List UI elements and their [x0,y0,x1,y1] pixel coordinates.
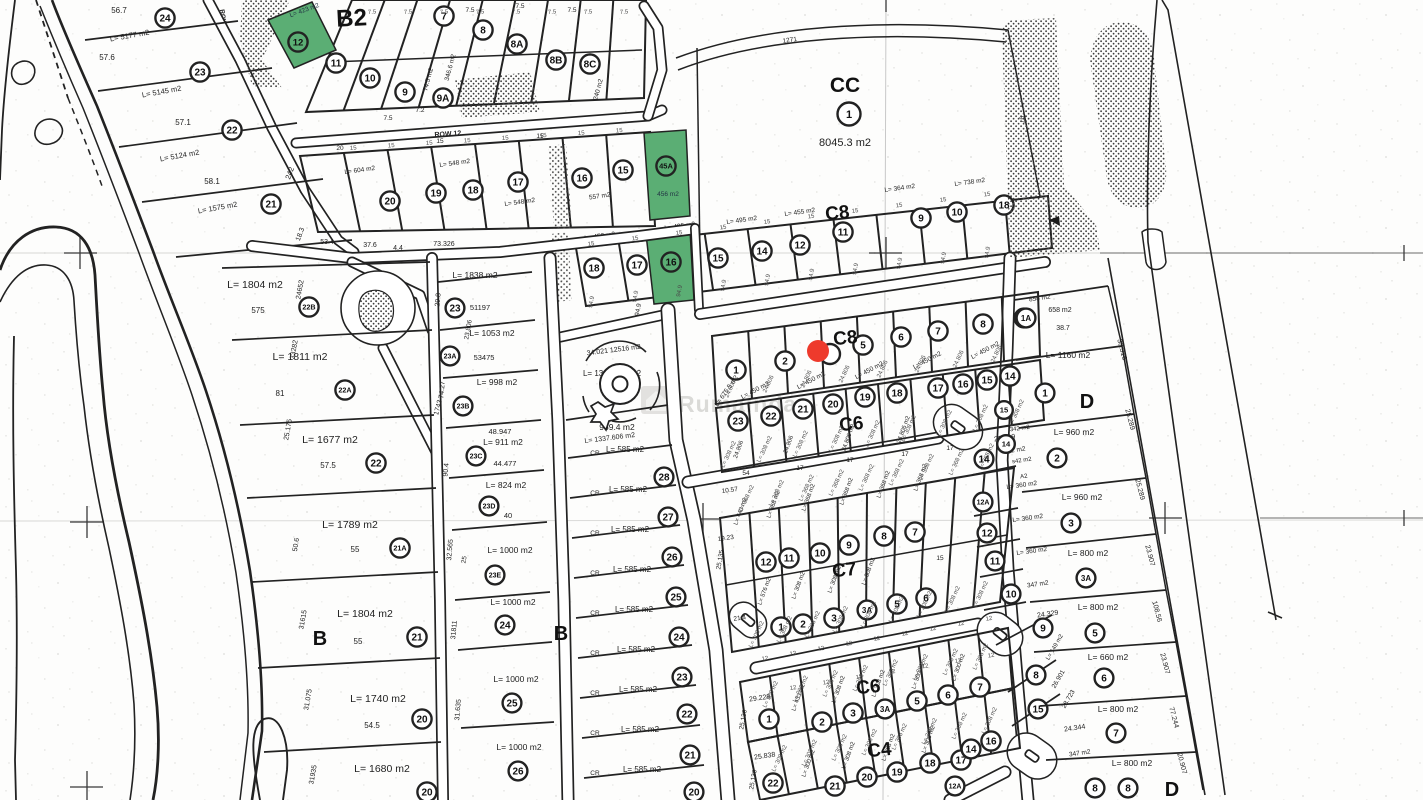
svg-text:L= 800 m2: L= 800 m2 [1112,758,1153,768]
svg-text:20: 20 [336,145,344,152]
svg-text:24: 24 [159,14,171,25]
svg-text:15: 15 [936,555,944,562]
svg-text:5: 5 [914,697,920,708]
svg-text:15: 15 [436,138,444,145]
svg-text:18: 18 [891,389,903,400]
svg-text:11: 11 [838,228,849,239]
svg-text:7.5: 7.5 [548,9,557,16]
svg-text:10: 10 [814,549,826,560]
svg-text:L= 800 m2: L= 800 m2 [1098,704,1139,714]
svg-text:19: 19 [859,393,871,404]
svg-text:81: 81 [276,389,285,398]
svg-text:CR: CR [590,650,600,657]
svg-text:CR: CR [590,690,600,697]
svg-text:8: 8 [1033,671,1039,682]
svg-text:CR: CR [590,610,600,617]
svg-text:3: 3 [1068,519,1074,530]
svg-text:21: 21 [265,200,277,211]
svg-text:7.5: 7.5 [383,115,392,122]
svg-text:18: 18 [924,759,936,770]
svg-text:17: 17 [512,178,524,189]
svg-text:21: 21 [829,782,841,793]
svg-text:3: 3 [850,709,856,720]
svg-text:16: 16 [665,258,677,269]
svg-text:15: 15 [464,138,472,144]
svg-text:B2: B2 [336,4,368,33]
svg-text:7: 7 [912,528,918,539]
svg-text:5: 5 [1092,629,1098,640]
svg-text:12: 12 [760,558,772,569]
svg-text:10: 10 [364,74,376,85]
svg-text:8: 8 [980,320,986,331]
svg-text:3A: 3A [880,705,890,714]
svg-text:L= 585 m2: L= 585 m2 [619,685,658,694]
svg-text:C8: C8 [824,202,850,225]
svg-text:D: D [1165,779,1179,800]
svg-text:8: 8 [480,26,486,37]
svg-text:L= 1680 m2: L= 1680 m2 [354,763,410,775]
svg-text:3A: 3A [1081,574,1091,583]
svg-text:51197: 51197 [470,303,490,312]
svg-text:7.5: 7.5 [512,9,521,16]
svg-text:37.6: 37.6 [363,242,377,249]
svg-text:23: 23 [732,417,744,428]
svg-text:L= 1811 m2: L= 1811 m2 [273,351,328,363]
svg-text:20: 20 [861,773,873,784]
svg-text:17: 17 [901,451,909,458]
svg-text:53475: 53475 [474,353,495,362]
svg-text:14: 14 [756,247,768,258]
svg-text:12A: 12A [977,500,990,507]
svg-text:7.5: 7.5 [465,7,474,14]
svg-text:23D: 23D [483,504,496,511]
svg-text:L= 585 m2: L= 585 m2 [617,645,656,654]
svg-text:11: 11 [990,557,1001,568]
svg-text:15: 15 [502,135,510,141]
svg-text:17: 17 [946,445,954,452]
svg-text:12: 12 [794,241,806,252]
svg-text:L= 585 m2: L= 585 m2 [613,565,652,574]
svg-text:B: B [313,628,327,650]
svg-text:7.2: 7.2 [415,107,424,114]
svg-text:658 m2: 658 m2 [1048,307,1071,314]
svg-text:8045.3 m2: 8045.3 m2 [819,137,871,149]
svg-text:1: 1 [1042,389,1048,400]
svg-text:26: 26 [666,553,678,564]
svg-text:15: 15 [712,254,724,265]
svg-text:10: 10 [951,208,963,219]
svg-text:9: 9 [1040,624,1046,635]
svg-text:24: 24 [673,633,685,644]
svg-text:55: 55 [354,637,363,646]
svg-text:57.5: 57.5 [320,461,336,470]
svg-text:7: 7 [1113,729,1119,740]
svg-text:L= 1740 m2: L= 1740 m2 [350,693,406,705]
svg-text:20: 20 [384,197,396,208]
svg-text:L= 960 m2: L= 960 m2 [1054,427,1095,437]
svg-text:22: 22 [226,126,238,137]
svg-text:15: 15 [350,145,358,151]
svg-text:28: 28 [658,473,670,484]
svg-text:L= 1053 m2: L= 1053 m2 [469,328,514,338]
svg-text:7.5: 7.5 [567,7,576,14]
svg-text:57.6: 57.6 [99,53,115,62]
svg-text:L= 1000 m2: L= 1000 m2 [487,545,532,555]
svg-text:2: 2 [782,357,788,368]
svg-text:20: 20 [827,400,839,411]
svg-text:7: 7 [977,683,983,694]
svg-text:L= 1804 m2: L= 1804 m2 [337,608,393,620]
svg-text:8: 8 [1125,784,1131,795]
svg-text:57.1: 57.1 [175,118,191,127]
svg-text:22B: 22B [302,303,315,312]
svg-text:15: 15 [426,140,434,146]
svg-text:B: B [554,623,568,645]
svg-text:44.477: 44.477 [494,459,517,468]
svg-text:L= 911 m2: L= 911 m2 [483,437,523,447]
svg-text:7: 7 [935,327,941,338]
svg-text:17: 17 [846,457,854,464]
svg-text:L= 660 m2: L= 660 m2 [1088,652,1129,662]
svg-text:22: 22 [681,710,693,721]
svg-text:15: 15 [616,128,624,134]
svg-text:CR: CR [590,570,600,577]
svg-text:6: 6 [898,333,904,344]
svg-text:23E: 23E [489,573,502,580]
svg-text:1: 1 [766,715,772,726]
svg-text:53.4: 53.4 [320,239,334,246]
svg-text:12: 12 [293,37,304,48]
svg-text:L= 824 m2: L= 824 m2 [486,480,527,490]
svg-text:CR: CR [590,770,600,777]
svg-text:8: 8 [881,532,887,543]
svg-text:15: 15 [540,133,548,139]
svg-text:12A: 12A [949,784,962,791]
svg-text:21: 21 [797,405,809,416]
svg-text:26: 26 [512,767,524,778]
svg-text:15: 15 [981,376,993,387]
svg-text:14: 14 [965,745,977,756]
svg-text:L= 1789 m2: L= 1789 m2 [322,519,378,531]
svg-text:7.5: 7.5 [404,9,413,16]
svg-text:8B: 8B [550,56,563,67]
svg-text:20: 20 [416,715,428,726]
svg-text:16: 16 [576,174,588,185]
svg-text:55: 55 [351,545,360,554]
svg-text:24: 24 [499,621,511,632]
svg-text:5: 5 [860,341,866,352]
svg-text:9: 9 [918,214,924,225]
svg-text:19: 19 [891,768,903,779]
svg-text:L= 1000 m2: L= 1000 m2 [493,674,538,684]
svg-text:20: 20 [688,788,700,799]
svg-text:73.326: 73.326 [433,241,455,248]
svg-text:CR: CR [590,530,600,537]
svg-text:2: 2 [1054,454,1060,465]
svg-text:9: 9 [846,541,852,552]
svg-text:L= 585 m2: L= 585 m2 [621,725,660,734]
svg-text:12: 12 [981,529,993,540]
svg-text:23: 23 [676,673,688,684]
svg-text:29.8: 29.8 [434,293,442,307]
svg-text:L= 585 m2: L= 585 m2 [609,485,648,494]
svg-text:21A: 21A [393,544,406,553]
svg-text:7.5: 7.5 [368,9,377,16]
svg-text:2: 2 [819,718,825,729]
svg-text:18: 18 [467,186,479,197]
svg-text:20: 20 [421,788,433,799]
svg-text:L= 1838 m2: L= 1838 m2 [452,270,497,280]
svg-text:15: 15 [578,130,586,136]
svg-text:25: 25 [670,593,682,604]
svg-text:38.7: 38.7 [1056,325,1070,332]
svg-text:17: 17 [631,261,643,272]
svg-text:CC: CC [830,74,860,97]
svg-text:23: 23 [449,304,461,315]
svg-text:CR: CR [590,490,600,497]
svg-text:6: 6 [1101,674,1107,685]
svg-text:15: 15 [388,143,396,149]
svg-text:1: 1 [846,109,852,121]
svg-text:9: 9 [402,88,408,99]
svg-text:23B: 23B [457,404,470,411]
svg-text:1A: 1A [1021,314,1031,323]
svg-text:21: 21 [684,751,696,762]
svg-text:22: 22 [767,779,779,790]
svg-text:21: 21 [411,633,423,644]
svg-text:14: 14 [1004,372,1016,383]
svg-text:L= 1804 m2: L= 1804 m2 [227,279,283,291]
svg-text:11: 11 [784,554,795,565]
svg-text:15: 15 [1000,406,1009,415]
svg-text:6: 6 [945,691,951,702]
svg-text:L= 1160 m2: L= 1160 m2 [1046,350,1091,360]
svg-text:17: 17 [796,465,804,472]
svg-text:22: 22 [370,459,382,470]
svg-text:8A: 8A [511,40,524,51]
svg-text:11: 11 [331,59,342,70]
svg-text:23A: 23A [444,354,457,361]
svg-text:14: 14 [1002,440,1011,449]
svg-text:456 m2: 456 m2 [657,191,679,198]
svg-text:L= 585 m2: L= 585 m2 [606,445,645,454]
svg-text:18: 18 [588,264,600,275]
svg-text:7.5: 7.5 [476,9,485,16]
svg-text:L= 585 m2: L= 585 m2 [615,605,654,614]
svg-text:L= 585 m2: L= 585 m2 [623,765,662,774]
svg-text:7.5: 7.5 [620,9,629,16]
svg-text:L= 800 m2: L= 800 m2 [1068,548,1109,558]
svg-text:19: 19 [430,189,442,200]
svg-text:22: 22 [765,412,777,423]
svg-text:23C: 23C [470,454,483,461]
svg-text:7.5: 7.5 [584,9,593,16]
svg-text:D: D [1080,391,1094,413]
svg-text:48.947: 48.947 [489,427,512,436]
svg-text:56.7: 56.7 [111,6,127,15]
svg-text:17: 17 [932,384,944,395]
svg-text:L= 998 m2: L= 998 m2 [477,377,518,387]
svg-text:40: 40 [504,511,512,520]
svg-text:CR: CR [590,730,600,737]
svg-text:9A: 9A [437,94,450,105]
svg-text:L= 800 m2: L= 800 m2 [1078,602,1119,612]
svg-text:8: 8 [1092,784,1098,795]
svg-text:15: 15 [617,166,629,177]
svg-text:575: 575 [251,306,265,315]
svg-text:10: 10 [1005,590,1017,601]
svg-text:16: 16 [985,737,997,748]
svg-text:8C: 8C [584,60,597,71]
svg-text:7.5: 7.5 [440,9,449,16]
svg-text:L= 1000 m2: L= 1000 m2 [490,597,535,607]
svg-text:L= 1000 m2: L= 1000 m2 [496,742,541,752]
svg-text:58.1: 58.1 [204,177,220,186]
svg-text:54: 54 [742,470,750,477]
svg-text:L= 585 m2: L= 585 m2 [611,525,650,534]
svg-text:27: 27 [662,513,674,524]
svg-text:CR: CR [590,450,600,457]
svg-text:16: 16 [957,380,969,391]
svg-text:23: 23 [194,68,206,79]
svg-text:2: 2 [800,620,806,631]
svg-text:L= 1677 m2: L= 1677 m2 [302,434,358,446]
svg-text:90.4: 90.4 [442,463,450,477]
svg-text:25: 25 [506,699,518,710]
svg-text:L= 960 m2: L= 960 m2 [1062,492,1103,502]
svg-text:22A: 22A [338,386,351,395]
svg-text:54.5: 54.5 [364,721,380,730]
svg-text:45A: 45A [659,162,673,171]
